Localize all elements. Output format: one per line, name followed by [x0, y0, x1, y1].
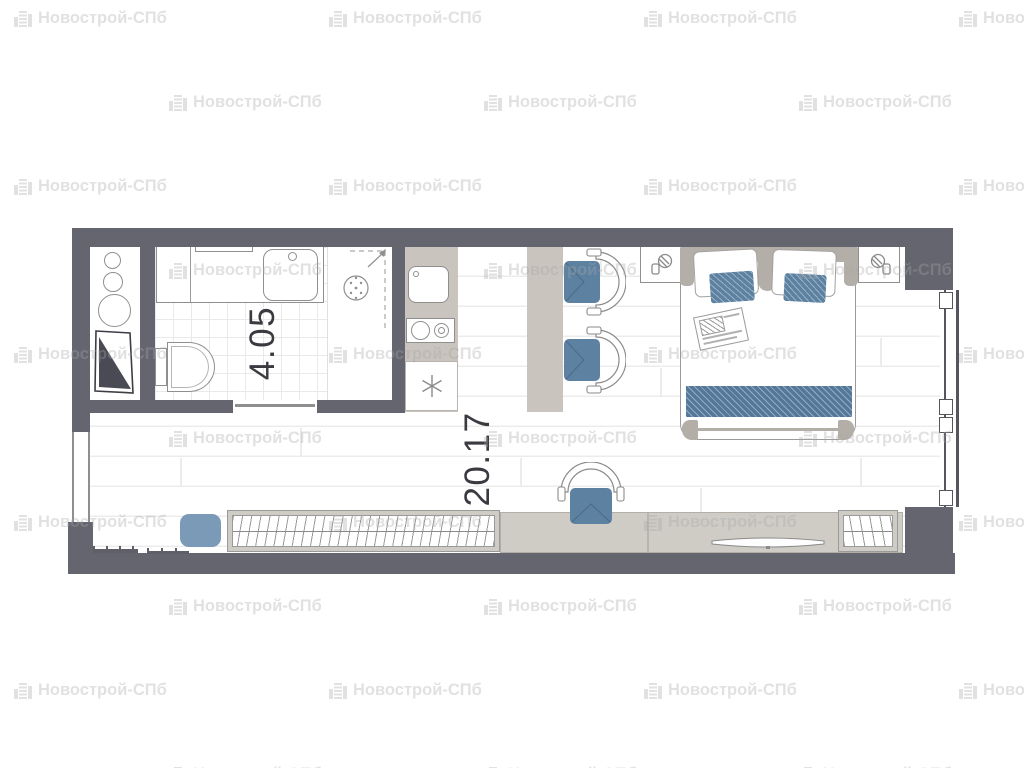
watermark: Новострой-СПб: [643, 680, 797, 700]
window: [905, 290, 960, 507]
floor-plan-canvas: 4.05 20.17 Новострой-СПб Новострой-СПб Н…: [0, 0, 1024, 768]
radiator: [93, 546, 138, 553]
window-frame-line: [956, 290, 959, 507]
building-icon: [958, 680, 978, 700]
building-icon: [483, 596, 503, 616]
headboard-post: [844, 244, 858, 286]
bottom-wall: [68, 553, 955, 574]
building-icon: [168, 596, 188, 616]
shaft-wall: [140, 247, 155, 407]
dining-chair: [556, 247, 626, 317]
watermark: Новострой-СПб: [958, 344, 1024, 364]
window-mullion: [939, 490, 953, 506]
watermark: Новострой-СПб: [958, 512, 1024, 532]
hanger-rail: [843, 515, 893, 547]
bathroom-sliding-door: [235, 404, 315, 407]
area-label-bathroom: 4.05: [243, 306, 283, 380]
tv: [710, 534, 826, 552]
watermark: Новострой-СПб: [483, 596, 637, 616]
window-mullion: [939, 292, 953, 309]
wardrobe: [227, 510, 500, 552]
bed-foot-corner: [838, 420, 854, 440]
watermark: Новострой-СПб: [798, 92, 952, 112]
accent-pillow: [709, 271, 755, 304]
plank-seam: [660, 368, 662, 396]
building-icon: [168, 92, 188, 112]
nightstand: [640, 245, 682, 283]
building-icon: [328, 680, 348, 700]
radiator: [147, 548, 189, 554]
counter-divider: [190, 244, 191, 302]
wardrobe-small: [838, 510, 898, 552]
window-mullion: [939, 399, 953, 415]
building-icon: [798, 596, 818, 616]
bathroom-wall-bottom-right: [317, 400, 405, 413]
headboard-post: [680, 244, 694, 286]
building-icon: [798, 764, 818, 768]
building-icon: [643, 8, 663, 28]
bathroom-sink: [263, 249, 318, 301]
watermark: Новострой-СПб: [13, 176, 167, 196]
watermark: Новострой-СПб: [328, 176, 482, 196]
plank-seam: [300, 428, 302, 456]
tile-edge: [327, 247, 328, 402]
pipe-circle: [104, 252, 121, 269]
burner: [411, 321, 430, 340]
toilet-tank: [155, 348, 167, 386]
watermark: Новострой-СПб: [958, 8, 1024, 28]
wall-lamp-icon: [866, 251, 894, 279]
watermark: Новострой-СПб: [328, 8, 482, 28]
console-divider: [647, 513, 649, 552]
double-bed: [678, 243, 860, 443]
pouf: [180, 514, 221, 547]
snowflake-icon: [420, 374, 444, 398]
building-icon: [13, 680, 33, 700]
building-icon: [483, 764, 503, 768]
building-icon: [13, 344, 33, 364]
faucet-dot: [288, 252, 297, 261]
building-icon: [13, 512, 33, 532]
building-icon: [13, 176, 33, 196]
building-icon: [958, 512, 978, 532]
pipe-circle: [98, 294, 131, 327]
building-icon: [168, 764, 188, 768]
plank-seam: [180, 458, 182, 486]
building-icon: [328, 8, 348, 28]
desk-chair: [556, 462, 626, 532]
right-wall-lower: [905, 507, 953, 570]
watermark: Новострой-СПб: [13, 680, 167, 700]
building-icon: [13, 8, 33, 28]
utility-shaft: [90, 247, 140, 400]
watermark: Новострой-СПб: [328, 680, 482, 700]
accent-pillow: [783, 273, 826, 303]
left-wall: [72, 247, 90, 432]
bathroom-wall-right: [392, 247, 405, 413]
building-icon: [958, 8, 978, 28]
top-wall: [72, 228, 953, 247]
watermark: Новострой-СПб: [483, 92, 637, 112]
magazine-line: [723, 313, 739, 318]
wall-lamp-icon: [648, 251, 676, 279]
entrance-door: [72, 432, 90, 522]
plank-seam: [520, 458, 522, 486]
dining-chair: [556, 325, 626, 395]
plank-seam: [880, 338, 882, 366]
bathroom-wall-bottom-left: [90, 400, 233, 413]
nightstand: [858, 245, 900, 283]
watermark: Новострой-СПб: [958, 680, 1024, 700]
watermark: Новострой-СПб: [643, 8, 797, 28]
building-icon: [483, 92, 503, 112]
plank-seam: [860, 458, 862, 486]
vent-duct: [92, 327, 136, 399]
building-icon: [958, 344, 978, 364]
shower-unit: [342, 245, 394, 333]
hanger-rail: [232, 515, 495, 547]
blanket: [686, 386, 852, 417]
watermark: Новострой-СПб: [13, 8, 167, 28]
watermark: Новострой-СПб: [168, 764, 322, 768]
watermark: Новострой-СПб: [798, 764, 952, 768]
watermark: Новострой-СПб: [483, 764, 637, 768]
watermark: Новострой-СПб: [798, 596, 952, 616]
area-label-main-room: 20.17: [458, 411, 498, 506]
kitchen-sink: [408, 266, 449, 303]
fridge: [405, 361, 458, 411]
building-icon: [643, 680, 663, 700]
cooktop: [406, 318, 455, 343]
right-wall-upper: [905, 228, 953, 290]
burner-inner: [438, 327, 445, 334]
toilet: [155, 342, 219, 392]
watermark: Новострой-СПб: [168, 92, 322, 112]
drain-dot: [413, 271, 419, 277]
watermark: Новострой-СПб: [958, 176, 1024, 196]
watermark: Новострой-СПб: [643, 176, 797, 196]
bathroom-door-gap: [233, 400, 317, 413]
pipe-circle: [103, 272, 123, 292]
watermark: Новострой-СПб: [168, 596, 322, 616]
building-icon: [643, 176, 663, 196]
window-mullion: [939, 417, 953, 433]
bed-foot-bar: [696, 428, 840, 431]
building-icon: [798, 92, 818, 112]
building-icon: [328, 176, 348, 196]
building-icon: [958, 176, 978, 196]
